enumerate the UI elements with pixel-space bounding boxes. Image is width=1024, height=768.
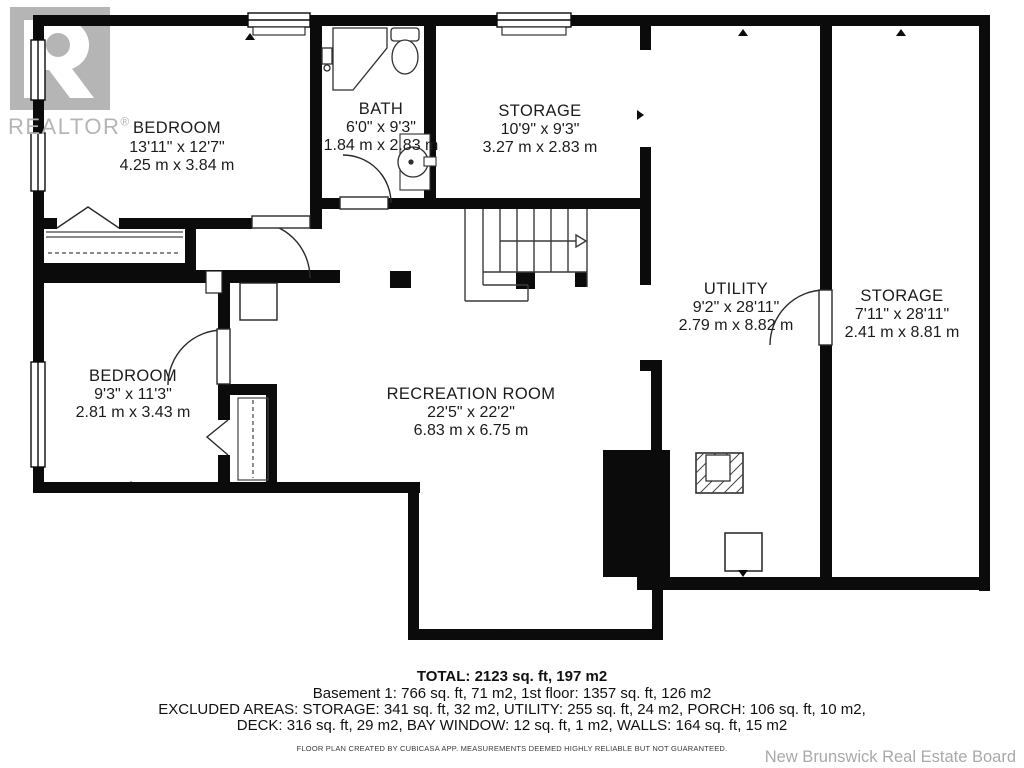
wall-utility-storage-divider-lower xyxy=(820,343,832,590)
room-label-storage-upper: STORAGE 10'9" x 9'3" 3.27 m x 2.83 m xyxy=(483,102,598,156)
room-name: RECREATION ROOM xyxy=(387,385,556,403)
closet-bifold-marker-upper xyxy=(57,207,119,228)
measure-arrow xyxy=(738,29,748,36)
measure-arrow xyxy=(738,570,748,577)
room-dim-metric: 2.81 m x 3.43 m xyxy=(76,404,191,421)
wall-bump-left xyxy=(408,482,419,640)
excluded-areas-line-1: EXCLUDED AREAS: STORAGE: 341 sq. ft, 32 … xyxy=(0,702,1024,718)
room-dim-metric: 3.27 m x 2.83 m xyxy=(483,139,598,156)
closet-lower-interior xyxy=(238,398,268,480)
door-bedroom-upper xyxy=(252,216,310,278)
room-dim-imperial: 22'5" x 22'2" xyxy=(427,404,515,421)
realtor-logo-label: REALTOR xyxy=(8,114,120,139)
wall-bottom-right-section xyxy=(637,577,990,590)
wall-bedroom-lower-east-c xyxy=(218,455,230,482)
room-name: BEDROOM xyxy=(89,367,177,385)
wall-bump-right xyxy=(652,577,663,640)
room-name: UTILITY xyxy=(704,280,768,298)
room-label-bedroom-upper: BEDROOM 13'11" x 12'7" 4.25 m x 3.84 m xyxy=(120,119,235,174)
excluded-areas-line-2: DECK: 316 sq. ft, 29 m2, BAY WINDOW: 12 … xyxy=(0,718,1024,734)
window-bedroom-lower-left xyxy=(31,362,45,467)
room-dim-metric: 2.79 m x 8.82 m xyxy=(679,317,794,334)
wall-bump-bottom xyxy=(408,629,663,640)
room-dim-metric: 4.25 m x 3.84 m xyxy=(120,157,235,174)
room-name: STORAGE xyxy=(498,102,581,120)
duct-box xyxy=(206,271,222,293)
stair-block-a xyxy=(516,272,535,289)
room-dim-metric: 1.84 m x 2.83 m xyxy=(324,137,439,154)
floor-plan-drawing: BEDROOM 13'11" x 12'7" 4.25 m x 3.84 m B… xyxy=(0,0,1024,768)
realtor-logo-wordmark: REALTOR® xyxy=(8,114,131,140)
wall-bedroom-upper-south xyxy=(196,218,252,229)
wall-bath-bottom-west xyxy=(310,198,340,209)
window-bedroom-upper-top xyxy=(248,13,310,35)
wall-closet-top-a xyxy=(33,218,57,229)
room-name: BEDROOM xyxy=(133,119,221,137)
room-dim-imperial: 9'2" x 28'11" xyxy=(693,299,780,316)
room-dim-metric: 2.41 m x 8.81 m xyxy=(845,324,960,341)
wall-utility-left-a xyxy=(640,15,651,50)
room-label-bath: BATH 6'0" x 9'3" 1.84 m x 2.83 m xyxy=(324,100,439,154)
toilet-icon xyxy=(391,28,419,74)
floor-plan-page: BEDROOM 13'11" x 12'7" 4.25 m x 3.84 m B… xyxy=(0,0,1024,768)
door-bath xyxy=(340,155,391,209)
hatched-equipment-box xyxy=(696,453,743,493)
wall-right xyxy=(979,15,990,591)
equipment-box xyxy=(725,533,762,571)
stairs-direction-arrow xyxy=(500,235,586,247)
wall-closet-stub xyxy=(185,218,196,274)
wall-bedroom-lower-north xyxy=(33,270,340,283)
utility-objects xyxy=(206,271,762,571)
room-dim-imperial: 13'11" x 12'7" xyxy=(129,139,224,156)
room-label-storage-right: STORAGE 7'11" x 28'11" 2.41 m x 8.81 m xyxy=(845,287,960,341)
column-post xyxy=(390,271,411,288)
room-label-utility: UTILITY 9'2" x 28'11" 2.79 m x 8.82 m xyxy=(679,280,794,334)
room-label-bedroom-lower: BEDROOM 9'3" x 11'3" 2.81 m x 3.43 m xyxy=(76,367,191,421)
measure-arrow xyxy=(637,110,644,120)
floors-area-line: Basement 1: 766 sq. ft, 71 m2, 1st floor… xyxy=(0,686,1024,702)
wall-storage-bottom xyxy=(388,198,651,209)
room-label-recreation-room: RECREATION ROOM 22'5" x 22'2" 6.83 m x 6… xyxy=(387,385,556,439)
room-dim-imperial: 9'3" x 11'3" xyxy=(94,386,172,403)
window-bedroom-upper-left-1 xyxy=(31,40,45,100)
room-dim-imperial: 10'9" x 9'3" xyxy=(501,121,580,138)
room-name: STORAGE xyxy=(860,287,943,305)
closet-upper-interior xyxy=(46,232,183,253)
window-storage-upper-top xyxy=(497,13,571,35)
wall-closet-top-b xyxy=(119,218,196,229)
furnace-block xyxy=(603,450,670,577)
wall-utility-left-b xyxy=(640,147,651,285)
appliance-box xyxy=(240,283,277,320)
wall-bottom-left-section xyxy=(33,482,420,493)
board-credit: New Brunswick Real Estate Board xyxy=(765,748,1016,767)
room-name: BATH xyxy=(359,100,403,118)
registered-trademark-symbol: ® xyxy=(120,115,130,129)
measure-arrow xyxy=(896,29,906,36)
stair-block-b xyxy=(575,272,587,287)
closet-bifold-marker-lower xyxy=(207,420,228,455)
window-bedroom-upper-left-2 xyxy=(31,133,45,191)
room-dim-metric: 6.83 m x 6.75 m xyxy=(414,422,529,439)
wall-bedroom-lower-east-b xyxy=(218,384,230,420)
wall-utility-storage-divider-upper xyxy=(820,15,832,292)
room-dim-imperial: 7'11" x 28'11" xyxy=(855,306,949,323)
shower-icon xyxy=(322,28,387,90)
wall-bath-left xyxy=(310,15,322,229)
total-area-line: TOTAL: 2123 sq. ft, 197 m2 xyxy=(0,669,1024,685)
room-dim-imperial: 6'0" x 9'3" xyxy=(346,119,416,136)
door-bedroom-lower xyxy=(168,329,230,385)
